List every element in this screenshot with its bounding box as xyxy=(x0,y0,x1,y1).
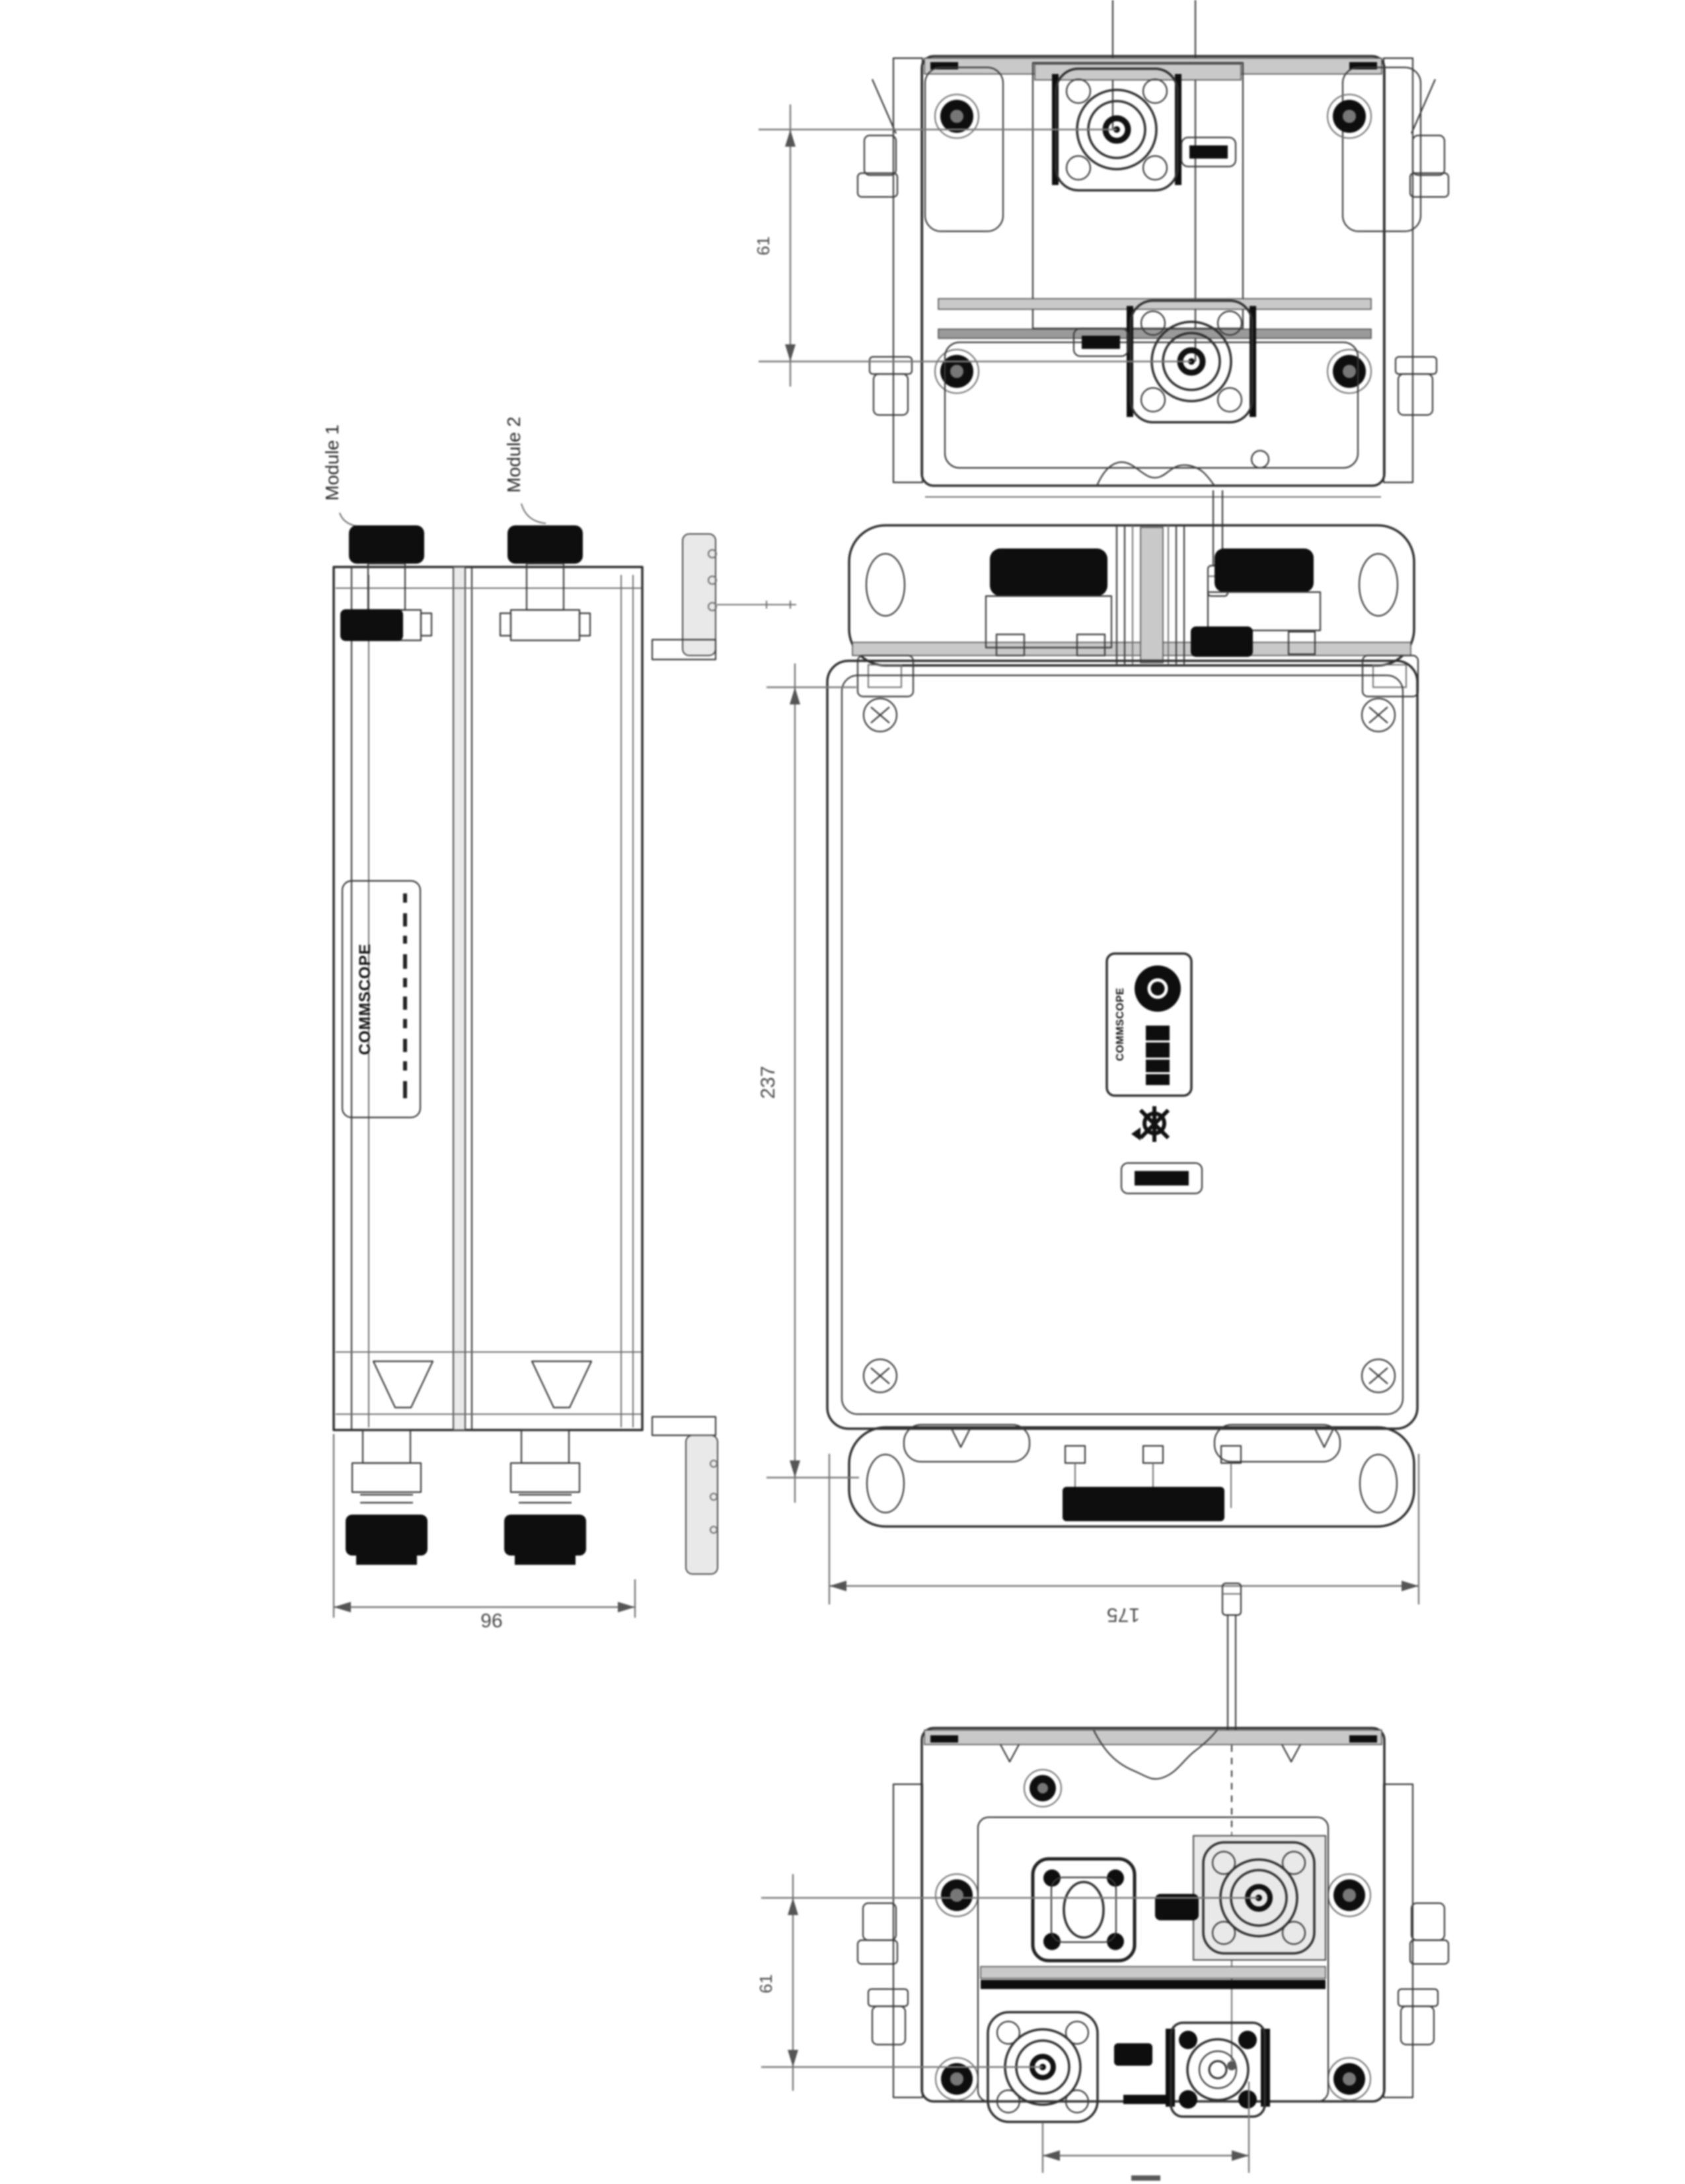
engineering-drawing-sheet: 61 Module 1 Module 2 xyxy=(0,0,1685,2184)
small-hole-top-view xyxy=(1252,451,1269,468)
commscope-side-label: COMMSCOPE xyxy=(342,881,420,1117)
dimension-port-spacing-top-text: 61 xyxy=(753,237,773,256)
top-view: 61 xyxy=(753,0,1448,596)
bottom-bracket-black-label xyxy=(1063,1487,1224,1521)
label-logo-dot xyxy=(1135,965,1181,1012)
grounding-rod-bottom-view xyxy=(1222,1583,1241,2066)
leader-module1 xyxy=(340,513,374,527)
front-bottom-bracket xyxy=(849,1425,1414,1526)
side-brand-text: COMMSCOPE xyxy=(356,943,374,1055)
mounting-hole-bottom-right xyxy=(1360,1454,1397,1513)
side-view-bottom-bracket xyxy=(652,1417,718,1574)
module2-top-connector xyxy=(500,525,590,640)
side-view-top-bracket xyxy=(652,534,796,659)
ground-symbol xyxy=(1131,1106,1168,1142)
dimension-port-spacing-bottom-text: 61 xyxy=(756,1975,776,1994)
cap-front-right xyxy=(1215,548,1314,592)
front-view: COMMSCOPE xyxy=(757,525,1419,1626)
label-code-block xyxy=(1146,1026,1170,1085)
module1-label: Module 1 xyxy=(322,424,342,500)
side-view: Module 1 Module 2 xyxy=(322,416,796,1631)
cap-front-left xyxy=(990,548,1107,596)
dimension-height-text: 237 xyxy=(757,1066,779,1099)
side-view-body xyxy=(334,567,642,1430)
module1-bottom-connector xyxy=(346,1430,428,1565)
label-chip-top-1 xyxy=(1181,137,1236,167)
mounting-hole-top-left xyxy=(866,554,905,616)
plate-bottom-tab xyxy=(1123,2095,1170,2104)
plate-screw-bottom-view xyxy=(1024,1770,1061,1807)
mounting-hole-bottom-left xyxy=(867,1454,904,1513)
square-connector-bottom-view xyxy=(1033,1859,1135,1961)
mounting-hole-top-right xyxy=(1359,554,1398,616)
front-brand-text: COMMSCOPE xyxy=(1115,987,1126,1061)
commscope-front-label: COMMSCOPE xyxy=(1107,954,1191,1096)
front-top-bracket xyxy=(849,525,1418,697)
front-small-chip xyxy=(1121,1163,1202,1193)
bottom-view-side-clamps xyxy=(858,1784,1448,2097)
dimension-width-text: 175 xyxy=(1107,1604,1140,1626)
side-label-fineprint xyxy=(403,893,407,1098)
module2-label: Module 2 xyxy=(504,416,524,492)
dimension-width: 175 xyxy=(829,1454,1419,1626)
label-chip-bottom-view-2 xyxy=(1114,2043,1152,2066)
front-corner-screws xyxy=(864,698,1395,1392)
module2-bottom-connector xyxy=(504,1430,586,1565)
dimension-height: 237 xyxy=(757,663,859,1503)
bottom-view: 61 xyxy=(756,1583,1448,2181)
mounting-ear-top-left xyxy=(925,67,1003,231)
leader-module2 xyxy=(521,504,546,523)
dimension-depth-text: 96 xyxy=(480,1609,502,1631)
upper-module-boss xyxy=(1033,63,1243,328)
module1-top-connector xyxy=(340,525,431,641)
dimension-port-spacing-top: 61 xyxy=(753,104,1191,387)
dimension-bottom-text-cropped xyxy=(1131,2175,1160,2181)
rail-bar-2 xyxy=(938,329,1371,338)
plate-notch-top-view xyxy=(1097,462,1215,486)
mounting-ear-top-right xyxy=(1343,67,1421,231)
